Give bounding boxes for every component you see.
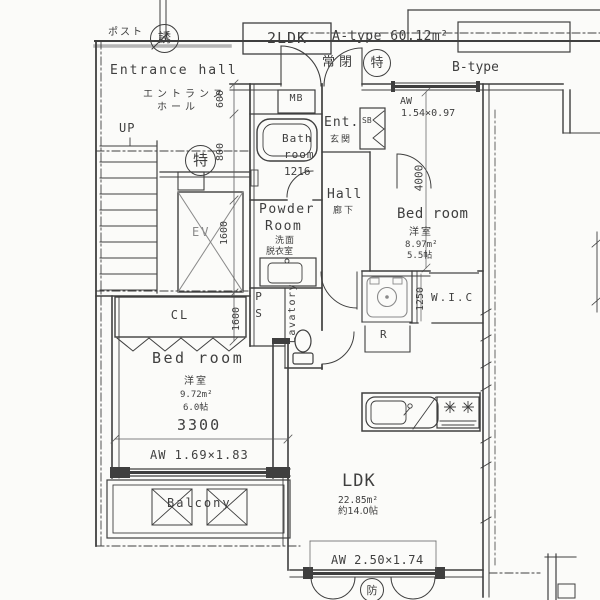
bedroom-west-jp: 洋室: [184, 377, 208, 387]
bedroom-east-name: Bed room: [397, 207, 468, 221]
kitchen-sink-icon: [366, 397, 438, 428]
bedroom-east-window-label: AW: [400, 97, 412, 107]
entrance-hall-label: Entrance hall: [110, 64, 238, 77]
powder-room-jp1: 洗面: [275, 237, 295, 246]
bath-label-1: Bath: [282, 133, 313, 144]
unit-title: A-type 60.12m²: [332, 30, 449, 43]
ldk-area: 22.85m²: [338, 496, 378, 506]
corner-fragments: [489, 232, 600, 600]
ldk-window-label: AW 2.50×1.74: [331, 554, 424, 566]
unit-type-badge: 2LDK: [243, 31, 331, 46]
dim-1600-cl: 1600: [232, 307, 242, 331]
plan-linework: [0, 0, 600, 600]
wic-label: W.I.C: [431, 292, 474, 303]
lavatory-label: Lavatory: [288, 283, 298, 343]
shoe-box-icon: [360, 108, 385, 149]
bedroom-west-area: 9.72m²: [180, 391, 213, 400]
shoe-box-label: SB: [362, 117, 372, 125]
dim-600: 600: [216, 90, 226, 108]
bedroom-east-jp: 洋室: [409, 228, 433, 238]
fridge-space: [365, 326, 410, 352]
powder-room-label-1: Powder: [259, 203, 315, 216]
powder-room-jp2: 脱衣室: [266, 248, 293, 257]
dimension-lines-west: [230, 80, 238, 345]
dim-800: 800: [216, 143, 226, 161]
fire-door-badge-stairs: 特: [185, 145, 216, 176]
ldk-name: LDK: [342, 473, 376, 490]
entrance-hall-jp2: ホール: [157, 103, 199, 113]
elevator: [178, 192, 243, 292]
balcony-rail: [96, 480, 300, 546]
bedroom-east-area: 8.97m²: [405, 241, 438, 250]
floor-plan: ポスト 誘 Entrance hall エントランス ホール UP 特 EV 2…: [0, 0, 600, 600]
fire-door-badge-entry: 特: [363, 49, 391, 77]
bedroom-east-window: [391, 81, 480, 92]
elevator-label: EV: [192, 226, 210, 238]
dim-1250: 1250: [416, 287, 426, 311]
pipe-space-label: PS: [253, 290, 264, 324]
dim-3300: 3300: [177, 418, 221, 433]
bedroom-east-tatami: 5.5帖: [407, 252, 432, 261]
bedroom-west-name: Bed room: [152, 351, 244, 366]
bedroom-west-tatami: 6.0帖: [183, 404, 208, 413]
dimension-3300: [111, 435, 292, 443]
dim-1600-ev: 1600: [220, 221, 230, 245]
closet-label: CL: [160, 309, 200, 321]
hall-ldk-door: [321, 272, 357, 309]
bedroom-east-south-wall: [362, 271, 483, 276]
always-closed-label: 常閉: [322, 56, 356, 69]
bedroom-west-window-label: AW 1.69×1.83: [150, 449, 249, 461]
dim-4000: 4000: [414, 165, 425, 192]
bedroom-east-window-size: 1.54×0.97: [401, 109, 455, 119]
toilet-icon: [293, 330, 354, 364]
bedroom-west-window: [110, 467, 290, 478]
fridge-label: R: [380, 329, 387, 340]
meter-box-label: MB: [278, 94, 315, 104]
hall-label: Hall: [327, 188, 362, 201]
post-label: ポスト: [108, 28, 144, 38]
stairs-up-label: UP: [119, 122, 135, 134]
washer-icon: [362, 271, 412, 322]
balcony-label: Balcony: [167, 497, 232, 509]
bath-label-2: room: [284, 149, 315, 160]
stove-icon: [437, 397, 479, 428]
adjacent-unit-label: B-type: [452, 61, 498, 74]
outer-walls: [95, 0, 600, 546]
south-wall-window: [290, 567, 483, 579]
bath-size-label: 1216: [284, 166, 311, 177]
entry-label-jp: 玄関: [330, 136, 352, 145]
powder-room-label-2: Room: [265, 220, 302, 233]
entry-label: Ent.: [324, 116, 359, 129]
ldk-tatami: 約14.0帖: [338, 507, 378, 517]
guide-light-badge: 誘: [150, 24, 179, 53]
closet: [115, 297, 246, 351]
stairs: [100, 138, 157, 293]
east-wall: [481, 84, 495, 597]
fire-shutter-badge: 防: [360, 578, 384, 600]
washbasin-icon: [260, 258, 316, 286]
hall-label-jp: 廊下: [333, 207, 355, 216]
